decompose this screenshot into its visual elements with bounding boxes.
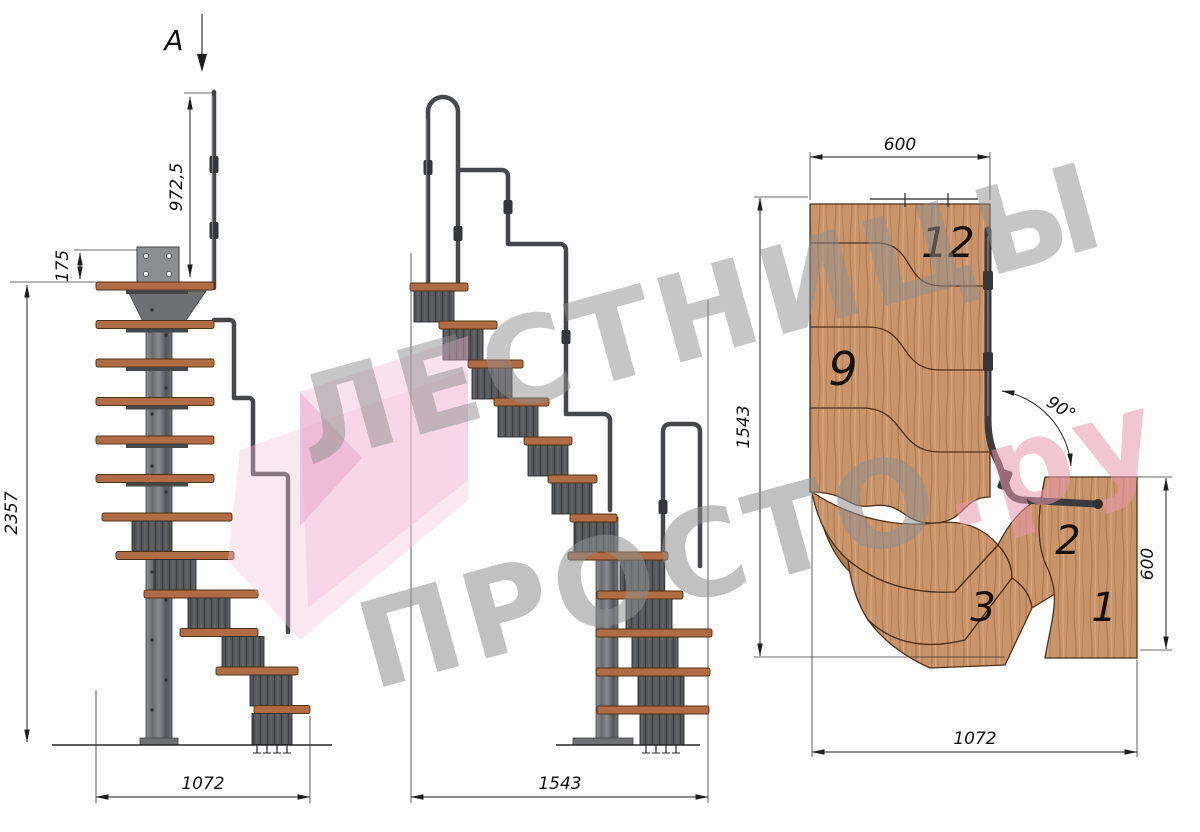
- dim-label-plan-bottom: 1072: [953, 729, 996, 749]
- module-feet-side: [253, 745, 291, 753]
- section-arrow-head: [197, 54, 207, 72]
- staircase-technical-drawing: 972,5 175 2357 1072 A: [0, 0, 1200, 832]
- step-number-3: 3: [970, 585, 995, 631]
- section-label: A: [162, 24, 183, 57]
- dim-label-total-height: 2357: [2, 491, 22, 534]
- mounting-bracket: [137, 247, 179, 283]
- dim-label-bracket-height: 175: [53, 250, 73, 282]
- dim-label-side-length: 1072: [181, 774, 224, 794]
- front-handrail-loop: [424, 97, 463, 283]
- side-view: 972,5 175 2357 1072 A: [2, 14, 332, 803]
- column-base: [140, 738, 178, 745]
- dim-label-front-width: 1543: [538, 774, 581, 794]
- dim-label-plan-right: 600: [1138, 548, 1158, 580]
- dim-label-plan-depth: 1543: [734, 405, 754, 448]
- step-number-1: 1: [1091, 585, 1116, 631]
- dim-label-plan-top: 600: [884, 135, 916, 155]
- front-column-base: [573, 738, 633, 745]
- drawing-svg: 972,5 175 2357 1072 A: [0, 0, 1200, 832]
- module-feet-front: [642, 745, 680, 753]
- dim-label-handrail-height: 972,5: [167, 163, 187, 212]
